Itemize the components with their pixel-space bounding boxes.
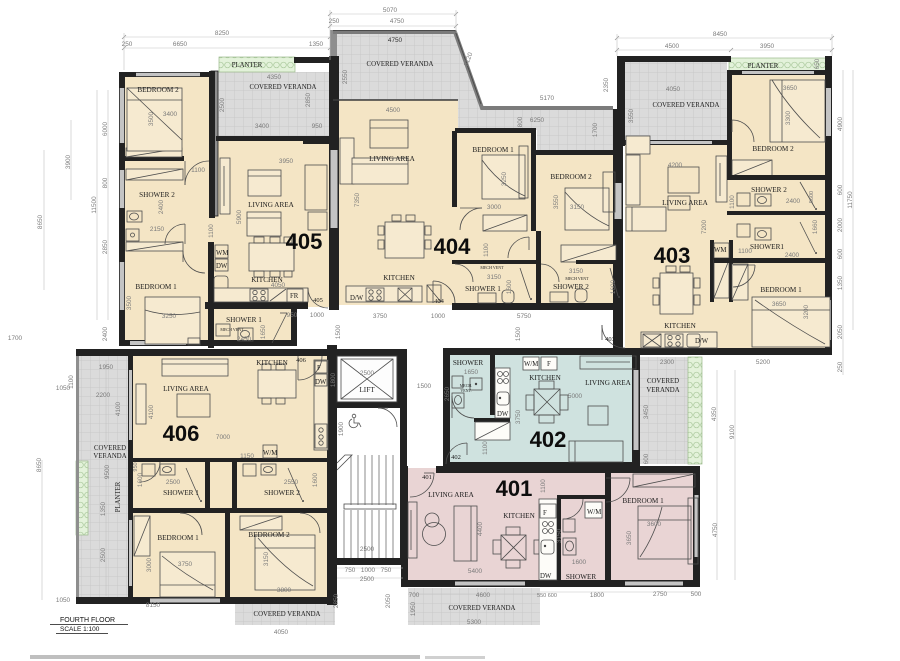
svg-text:3650: 3650 [626, 530, 633, 545]
svg-text:4500: 4500 [665, 43, 680, 50]
svg-text:3750: 3750 [373, 313, 388, 320]
svg-text:PLANTER: PLANTER [115, 481, 122, 512]
svg-text:1350: 1350 [837, 275, 844, 290]
svg-text:7350: 7350 [354, 192, 361, 207]
svg-text:FOURTH FLOOR: FOURTH FLOOR [60, 617, 115, 624]
svg-text:1100: 1100 [483, 243, 490, 257]
svg-text:4750: 4750 [390, 18, 405, 25]
svg-text:1600: 1600 [572, 559, 587, 566]
svg-text:SHOWER 1: SHOWER 1 [163, 489, 199, 497]
svg-text:3950: 3950 [279, 158, 294, 165]
svg-text:3000: 3000 [487, 204, 502, 211]
svg-text:5170: 5170 [540, 95, 555, 102]
svg-text:4600: 4600 [476, 592, 491, 599]
svg-text:3250: 3250 [162, 313, 177, 320]
svg-text:F: F [317, 365, 321, 372]
svg-text:2050: 2050 [385, 593, 392, 608]
svg-text:1100: 1100 [68, 375, 75, 389]
svg-text:500: 500 [691, 591, 702, 598]
svg-text:1100: 1100 [208, 224, 215, 238]
svg-text:BEDROOM 1: BEDROOM 1 [157, 534, 199, 542]
svg-text:2000: 2000 [837, 217, 844, 232]
svg-text:W/M: W/M [587, 509, 601, 516]
svg-text:COVERED VERANDA: COVERED VERANDA [653, 102, 720, 109]
svg-text:3900: 3900 [65, 154, 72, 169]
svg-text:405: 405 [286, 229, 323, 254]
svg-text:600: 600 [837, 248, 844, 259]
svg-text:1800: 1800 [330, 372, 337, 387]
svg-text:1500: 1500 [515, 326, 522, 341]
svg-text:4750: 4750 [712, 522, 719, 537]
svg-text:1150: 1150 [240, 453, 254, 460]
svg-text:KITCHEN: KITCHEN [664, 322, 696, 330]
svg-text:1500: 1500 [335, 324, 342, 339]
svg-text:3550: 3550 [553, 194, 560, 209]
svg-text:2300: 2300 [660, 359, 675, 366]
svg-text:4350: 4350 [711, 406, 718, 421]
svg-text:LIVING AREA: LIVING AREA [369, 155, 416, 163]
svg-text:2450: 2450 [237, 336, 252, 343]
svg-text:4350: 4350 [267, 74, 282, 81]
svg-text:PLANTER: PLANTER [748, 63, 779, 70]
svg-text:3150: 3150 [263, 551, 270, 566]
svg-text:2550: 2550 [284, 479, 299, 486]
svg-text:2750: 2750 [653, 591, 668, 598]
svg-text:700: 700 [409, 592, 420, 599]
svg-text:D/W: D/W [695, 338, 709, 345]
svg-text:3650: 3650 [772, 301, 787, 308]
svg-text:3000: 3000 [146, 557, 153, 572]
svg-text:3950: 3950 [760, 43, 775, 50]
svg-text:3150: 3150 [570, 204, 585, 211]
svg-text:2500: 2500 [360, 576, 375, 583]
svg-text:2350: 2350 [603, 77, 610, 92]
svg-text:VERANDA: VERANDA [646, 387, 679, 394]
svg-text:1000: 1000 [431, 313, 446, 320]
svg-text:4050: 4050 [274, 629, 289, 636]
svg-text:403: 403 [605, 336, 615, 343]
svg-text:950: 950 [312, 123, 323, 130]
svg-text:402: 402 [451, 454, 461, 461]
svg-text:W/M: W/M [524, 361, 538, 368]
svg-text:FR: FR [290, 293, 299, 300]
svg-text:1100: 1100 [191, 167, 205, 174]
svg-text:2050: 2050 [837, 324, 844, 339]
svg-text:3200: 3200 [803, 304, 810, 319]
svg-text:KITCHEN: KITCHEN [529, 374, 561, 382]
svg-text:7000: 7000 [216, 434, 231, 441]
svg-text:5900: 5900 [236, 209, 243, 224]
svg-text:BEDROOM 1: BEDROOM 1 [135, 283, 177, 291]
svg-text:2500: 2500 [360, 546, 375, 553]
svg-text:F: F [547, 361, 551, 368]
svg-text:1600: 1600 [506, 279, 513, 294]
svg-text:750: 750 [345, 567, 356, 574]
svg-text:550 600: 550 600 [537, 593, 557, 599]
svg-text:5300: 5300 [467, 619, 482, 626]
svg-text:5000: 5000 [568, 393, 583, 400]
svg-text:800: 800 [517, 116, 524, 127]
svg-text:COVERED: COVERED [94, 445, 126, 452]
svg-text:DW: DW [315, 379, 327, 386]
svg-text:2500: 2500 [166, 479, 181, 486]
svg-text:2400: 2400 [786, 198, 801, 205]
svg-text:2400: 2400 [102, 326, 109, 341]
svg-text:250: 250 [329, 18, 340, 25]
svg-text:600: 600 [643, 453, 650, 464]
svg-text:SHOWER 2: SHOWER 2 [751, 186, 787, 194]
svg-text:4100: 4100 [148, 404, 155, 419]
svg-text:650: 650 [814, 58, 821, 69]
svg-text:1660: 1660 [812, 219, 819, 234]
svg-text:5200: 5200 [756, 359, 771, 366]
svg-text:BEDROOM 2: BEDROOM 2 [752, 145, 794, 153]
svg-text:LIVING AREA: LIVING AREA [248, 201, 295, 209]
svg-text:SHOWER1: SHOWER1 [750, 243, 784, 251]
svg-text:2850: 2850 [102, 239, 109, 254]
svg-text:BEDROOM 1: BEDROOM 1 [622, 497, 664, 505]
svg-text:1100: 1100 [540, 479, 547, 493]
svg-text:3750: 3750 [515, 409, 522, 424]
svg-text:404: 404 [434, 234, 471, 259]
svg-text:2850: 2850 [305, 92, 312, 107]
svg-text:LIVING AREA: LIVING AREA [163, 385, 210, 393]
svg-text:1050: 1050 [56, 597, 71, 604]
svg-text:F: F [543, 510, 547, 517]
svg-text:4900: 4900 [837, 116, 844, 131]
svg-text:8150: 8150 [146, 602, 161, 609]
svg-text:KITCHEN: KITCHEN [256, 359, 288, 367]
svg-text:250: 250 [122, 41, 133, 48]
svg-text:BEDROOM 1: BEDROOM 1 [760, 286, 802, 294]
svg-text:1000: 1000 [310, 312, 325, 319]
svg-text:402: 402 [530, 427, 567, 452]
svg-text:3150: 3150 [556, 528, 563, 543]
svg-text:LIVING AREA: LIVING AREA [585, 379, 632, 387]
svg-text:2200: 2200 [96, 392, 111, 399]
svg-text:BEDROOM 2: BEDROOM 2 [137, 86, 179, 94]
svg-text:3800: 3800 [277, 587, 292, 594]
svg-text:2400: 2400 [785, 252, 800, 259]
svg-text:MECH VENT: MECH VENT [220, 327, 244, 332]
svg-text:1100: 1100 [482, 441, 489, 455]
svg-text:KITCHEN: KITCHEN [503, 512, 535, 520]
svg-text:1600: 1600 [610, 279, 617, 294]
svg-text:BEDROOM 2: BEDROOM 2 [248, 531, 290, 539]
svg-text:250: 250 [837, 361, 844, 372]
svg-text:950: 950 [287, 312, 298, 319]
svg-text:401: 401 [422, 474, 432, 481]
svg-text:1700: 1700 [592, 122, 599, 137]
svg-text:750: 750 [381, 567, 392, 574]
svg-text:3300: 3300 [785, 110, 792, 125]
svg-text:DW: DW [540, 573, 552, 580]
svg-text:3500: 3500 [126, 295, 133, 310]
svg-text:1350: 1350 [100, 501, 107, 516]
svg-text:1500: 1500 [417, 383, 432, 390]
svg-text:1800: 1800 [590, 592, 605, 599]
svg-text:COVERED VERANDA: COVERED VERANDA [449, 605, 516, 612]
svg-text:3500: 3500 [148, 111, 155, 126]
svg-text:600: 600 [837, 184, 844, 195]
svg-text:3550: 3550 [628, 108, 635, 123]
svg-text:COVERED VERANDA: COVERED VERANDA [367, 61, 434, 68]
svg-text:800: 800 [102, 177, 109, 188]
svg-text:5070: 5070 [383, 7, 398, 14]
svg-text:1100: 1100 [738, 248, 752, 255]
svg-text:W/M: W/M [263, 450, 277, 457]
svg-text:2400: 2400 [158, 199, 165, 214]
svg-text:DW: DW [216, 263, 228, 270]
svg-text:405: 405 [313, 297, 323, 304]
svg-text:MECH VENT: MECH VENT [480, 265, 504, 270]
svg-text:PLANTER: PLANTER [232, 62, 263, 69]
svg-text:8650: 8650 [36, 457, 43, 472]
svg-text:2500: 2500 [100, 547, 107, 562]
svg-text:SHOWER 2: SHOWER 2 [553, 283, 589, 291]
svg-text:406: 406 [296, 357, 307, 364]
svg-text:3600: 3600 [647, 521, 662, 528]
svg-text:KITCHEN: KITCHEN [383, 274, 415, 282]
svg-text:1650: 1650 [260, 324, 267, 339]
svg-text:1700: 1700 [8, 335, 23, 342]
svg-text:6250: 6250 [530, 117, 545, 124]
svg-text:2500: 2500 [219, 97, 226, 112]
svg-text:2500: 2500 [360, 370, 375, 377]
svg-text:DW: DW [497, 411, 509, 418]
svg-text:SCALE 1:100: SCALE 1:100 [60, 626, 100, 633]
svg-text:1950: 1950 [410, 601, 417, 616]
svg-text:COVERED VERANDA: COVERED VERANDA [250, 84, 317, 91]
svg-text:9500: 9500 [104, 464, 111, 479]
svg-text:1000: 1000 [361, 567, 376, 574]
svg-text:8250: 8250 [215, 30, 230, 37]
svg-text:8450: 8450 [713, 31, 728, 38]
svg-text:1950: 1950 [99, 364, 114, 371]
svg-text:5600: 5600 [809, 191, 815, 203]
svg-text:BEDROOM 1: BEDROOM 1 [472, 146, 514, 154]
svg-text:SHOWER 1: SHOWER 1 [226, 316, 262, 324]
svg-text:9100: 9100 [729, 424, 736, 439]
svg-text:WM: WM [216, 250, 228, 257]
svg-text:2650: 2650 [444, 386, 451, 401]
svg-text:1900: 1900 [338, 421, 345, 436]
svg-text:2550: 2550 [342, 69, 349, 84]
svg-text:11500: 11500 [91, 196, 98, 214]
svg-text:4050: 4050 [666, 86, 681, 93]
svg-text:COVERED: COVERED [647, 378, 679, 385]
svg-text:D/W: D/W [350, 295, 364, 302]
svg-text:7200: 7200 [701, 219, 708, 234]
svg-text:6000: 6000 [102, 121, 109, 136]
svg-text:404: 404 [434, 298, 445, 305]
svg-text:3450: 3450 [643, 404, 650, 419]
svg-text:3400: 3400 [255, 123, 270, 130]
svg-text:2150: 2150 [150, 226, 165, 233]
svg-text:4100: 4100 [115, 401, 122, 416]
svg-text:SHOWER: SHOWER [566, 573, 597, 581]
svg-text:BEDROOM 2: BEDROOM 2 [550, 173, 592, 181]
svg-text:LIVING AREA: LIVING AREA [662, 199, 709, 207]
svg-text:5400: 5400 [468, 568, 483, 575]
svg-text:3150: 3150 [569, 268, 584, 275]
svg-text:MECH VENT: MECH VENT [565, 276, 589, 281]
svg-text:2850: 2850 [333, 593, 340, 608]
svg-text:1600: 1600 [312, 472, 319, 487]
svg-text:SHOWER 2: SHOWER 2 [139, 191, 175, 199]
svg-text:3750: 3750 [178, 561, 193, 568]
svg-text:11750: 11750 [847, 191, 854, 209]
svg-text:SHOWER 2: SHOWER 2 [264, 489, 300, 497]
svg-text:5750: 5750 [517, 313, 532, 320]
svg-text:1600: 1600 [137, 472, 144, 487]
svg-text:403: 403 [654, 243, 691, 268]
svg-text:4400: 4400 [477, 521, 484, 536]
svg-text:3400: 3400 [163, 111, 178, 118]
svg-text:4500: 4500 [386, 107, 401, 114]
svg-text:SHOWER 1: SHOWER 1 [465, 285, 501, 293]
svg-text:VENT.: VENT. [460, 388, 471, 393]
svg-text:VERANDA: VERANDA [93, 453, 126, 460]
svg-text:401: 401 [496, 476, 533, 501]
svg-text:COVERED VERANDA: COVERED VERANDA [254, 611, 321, 618]
svg-text:3250: 3250 [501, 171, 508, 186]
svg-text:WM: WM [714, 247, 726, 254]
svg-text:406: 406 [163, 421, 200, 446]
svg-text:1650: 1650 [464, 369, 479, 376]
svg-text:950: 950 [133, 462, 139, 471]
svg-text:LIVING AREA: LIVING AREA [428, 491, 475, 499]
svg-text:4200: 4200 [668, 162, 683, 169]
svg-text:6650: 6650 [173, 41, 188, 48]
svg-text:4050: 4050 [271, 282, 286, 289]
svg-text:LIFT: LIFT [359, 386, 375, 394]
svg-text:SHOWER: SHOWER [453, 359, 484, 367]
svg-text:1350: 1350 [309, 41, 324, 48]
svg-text:8650: 8650 [37, 214, 44, 229]
svg-text:1100: 1100 [729, 195, 736, 209]
svg-text:4750: 4750 [388, 37, 403, 44]
svg-text:3150: 3150 [487, 274, 502, 281]
svg-text:3650: 3650 [783, 85, 798, 92]
